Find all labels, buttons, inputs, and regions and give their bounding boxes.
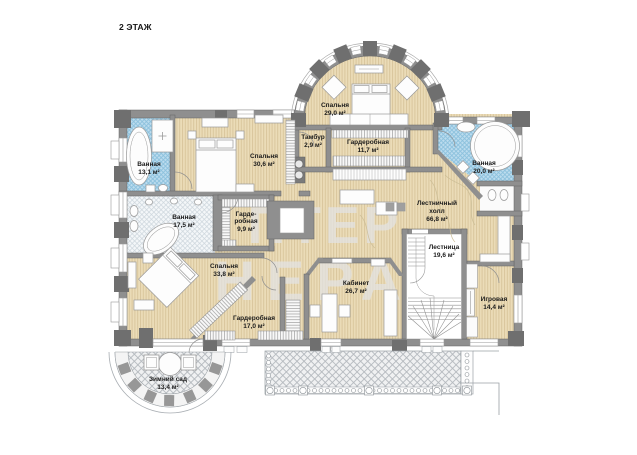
svg-text:11,7 м²: 11,7 м² [357, 147, 379, 154]
svg-text:Спальня: Спальня [321, 102, 349, 109]
svg-text:Гардеробная: Гардеробная [233, 314, 275, 322]
svg-text:Кабинет: Кабинет [343, 279, 369, 287]
svg-text:Спальня: Спальня [210, 263, 238, 270]
svg-text:2,9 м²: 2,9 м² [304, 142, 323, 149]
svg-text:Ванная: Ванная [172, 214, 196, 221]
svg-text:Лестница: Лестница [429, 244, 460, 251]
svg-text:Зимний сад: Зимний сад [149, 375, 187, 383]
svg-text:13,4 м²: 13,4 м² [157, 384, 179, 391]
svg-text:Ванная: Ванная [137, 161, 161, 168]
svg-text:20,0 м²: 20,0 м² [473, 168, 495, 175]
svg-text:Гардеробная: Гардеробная [347, 138, 389, 146]
svg-text:Игровая: Игровая [481, 296, 508, 303]
svg-text:17,5 м²: 17,5 м² [173, 222, 195, 229]
svg-text:Ванная: Ванная [472, 160, 496, 167]
svg-text:холл: холл [429, 208, 445, 215]
svg-text:Лестничный: Лестничный [417, 199, 457, 207]
svg-text:робная: робная [234, 217, 257, 225]
svg-text:13,1 м²: 13,1 м² [138, 169, 160, 176]
svg-text:Тамбур: Тамбур [301, 133, 325, 141]
svg-text:66,8 м²: 66,8 м² [426, 216, 448, 223]
svg-text:29,0 м²: 29,0 м² [324, 110, 346, 117]
svg-text:19,6 м²: 19,6 м² [433, 252, 455, 259]
svg-text:30,6 м²: 30,6 м² [253, 161, 275, 168]
svg-text:17,0 м²: 17,0 м² [243, 323, 265, 330]
svg-text:2 ЭТАЖ: 2 ЭТАЖ [119, 22, 152, 32]
svg-text:14,4 м²: 14,4 м² [483, 304, 505, 311]
svg-text:Гарде-: Гарде- [236, 211, 257, 218]
svg-text:9,9 м²: 9,9 м² [237, 226, 256, 233]
svg-text:Спальня: Спальня [250, 153, 278, 160]
svg-text:33,8 м²: 33,8 м² [213, 271, 235, 278]
svg-text:26,7 м²: 26,7 м² [345, 288, 367, 295]
